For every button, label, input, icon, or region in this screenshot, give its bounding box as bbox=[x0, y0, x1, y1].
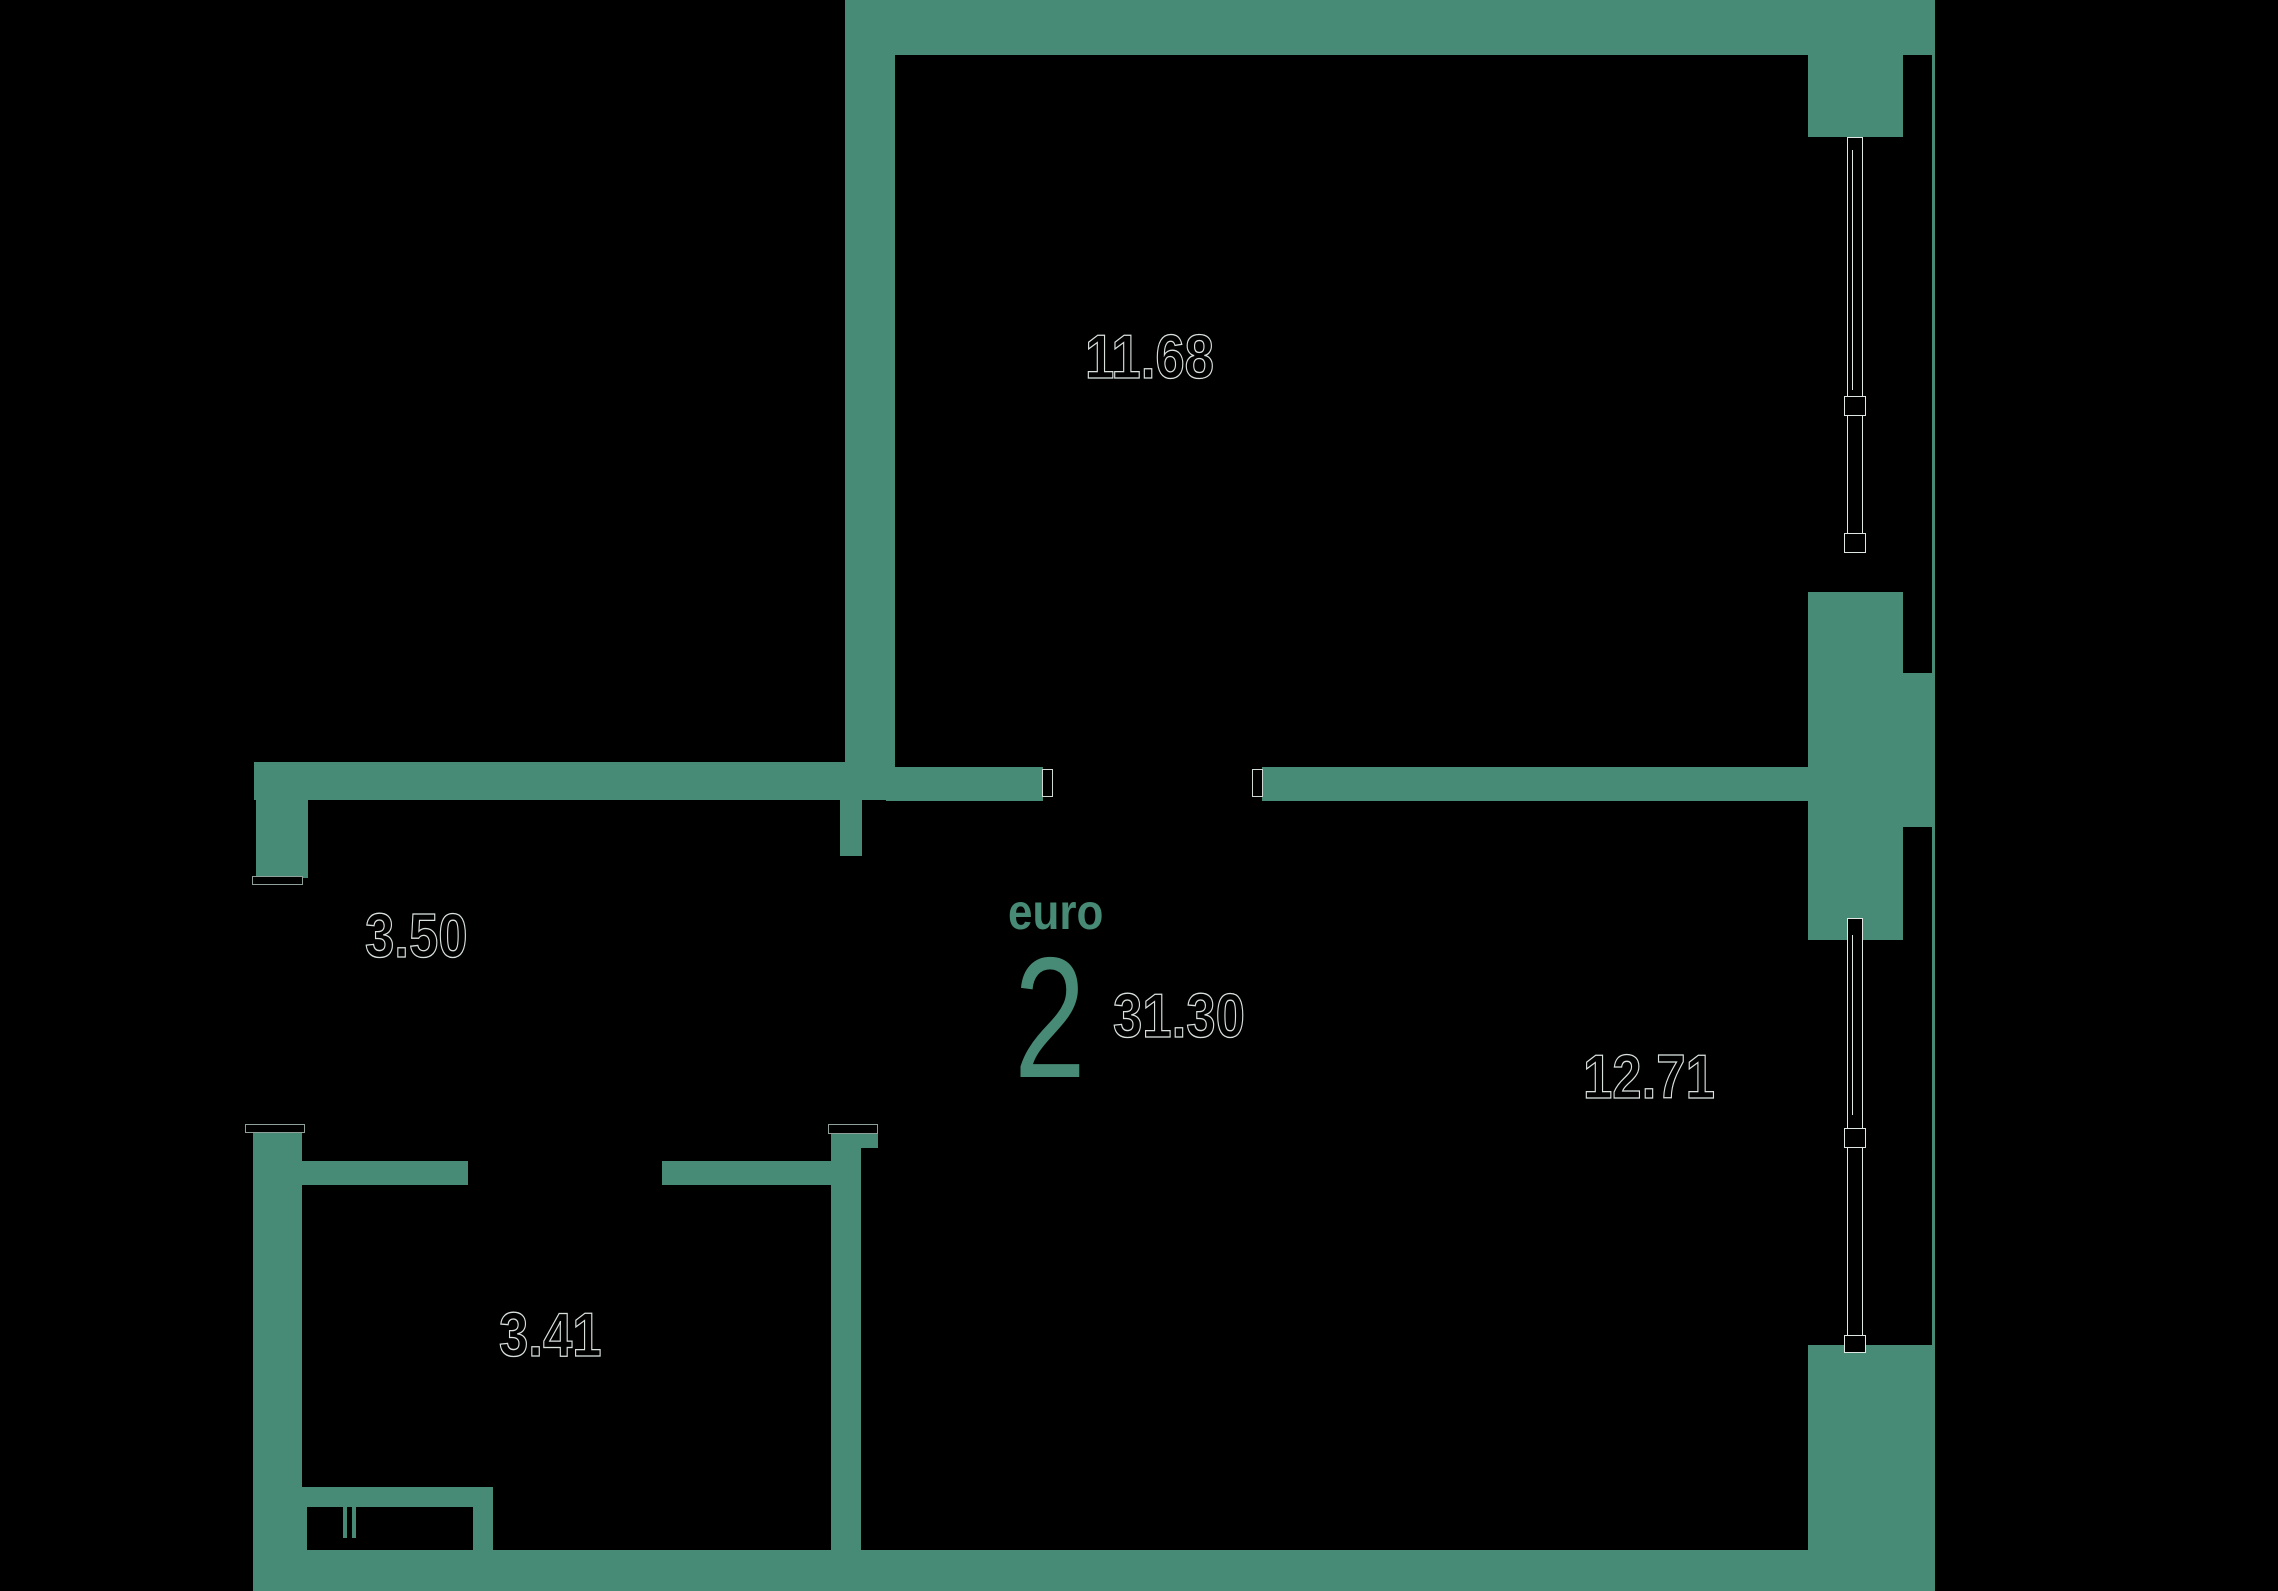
bedroom-door-frame-icon bbox=[1042, 769, 1053, 797]
bathroom-window-jamb-right bbox=[473, 1507, 493, 1550]
living-area-label: 12.71 bbox=[1583, 1047, 1715, 1109]
bedroom-area-label: 11.68 bbox=[1085, 327, 1214, 389]
bedroom-window-casement-line bbox=[1852, 150, 1854, 390]
living-window-casement-line bbox=[1852, 935, 1854, 1115]
wall-bathroom-window-bar bbox=[302, 1487, 493, 1507]
format-room-count: 2 bbox=[1014, 932, 1086, 1104]
wall-between-windows-outer bbox=[1903, 673, 1935, 827]
bathroom-area-label: 3.41 bbox=[499, 1305, 602, 1367]
wall-central-right-segment bbox=[1262, 767, 1810, 801]
bathroom-window-jamb-left bbox=[302, 1507, 307, 1550]
bedroom-door-frame-icon bbox=[1252, 769, 1263, 797]
wall-bedroom-left bbox=[845, 0, 895, 800]
wall-bathroom-top-left bbox=[302, 1161, 468, 1185]
wall-below-living-window bbox=[1808, 1345, 1935, 1591]
total-area-label: 31.30 bbox=[1113, 986, 1245, 1048]
bathroom-window-mullion bbox=[352, 1507, 356, 1538]
bedroom-window-icon bbox=[1847, 137, 1863, 553]
hallway-threshold-icon bbox=[245, 1124, 305, 1133]
bathroom-corner-threshold-icon bbox=[828, 1124, 878, 1134]
wall-bottom-exterior bbox=[253, 1550, 1935, 1591]
entrance-threshold-icon bbox=[252, 876, 303, 885]
wall-above-bedroom-window bbox=[1808, 55, 1903, 137]
hallway-area-label: 3.50 bbox=[365, 906, 468, 968]
wall-entrance-stub bbox=[256, 800, 308, 878]
wall-left-lower bbox=[253, 1133, 302, 1591]
facade-edge-line bbox=[1932, 55, 1935, 1445]
bathroom-window-mullion bbox=[343, 1507, 347, 1538]
wall-bathroom-right bbox=[831, 1134, 861, 1562]
living-window-divider bbox=[1844, 1128, 1866, 1148]
wall-central-left-segment bbox=[886, 767, 1043, 801]
bedroom-window-end bbox=[1844, 533, 1866, 553]
floor-plan: 11.68 3.50 3.41 12.71 31.30 euro 2 bbox=[0, 0, 2278, 1591]
bedroom-window-divider bbox=[1844, 396, 1866, 416]
wall-top-exterior bbox=[845, 0, 1935, 55]
wall-stub-below-central bbox=[840, 800, 862, 856]
wall-hallway-top bbox=[254, 762, 895, 800]
wall-between-windows bbox=[1808, 592, 1903, 940]
living-window-end bbox=[1844, 1335, 1866, 1353]
